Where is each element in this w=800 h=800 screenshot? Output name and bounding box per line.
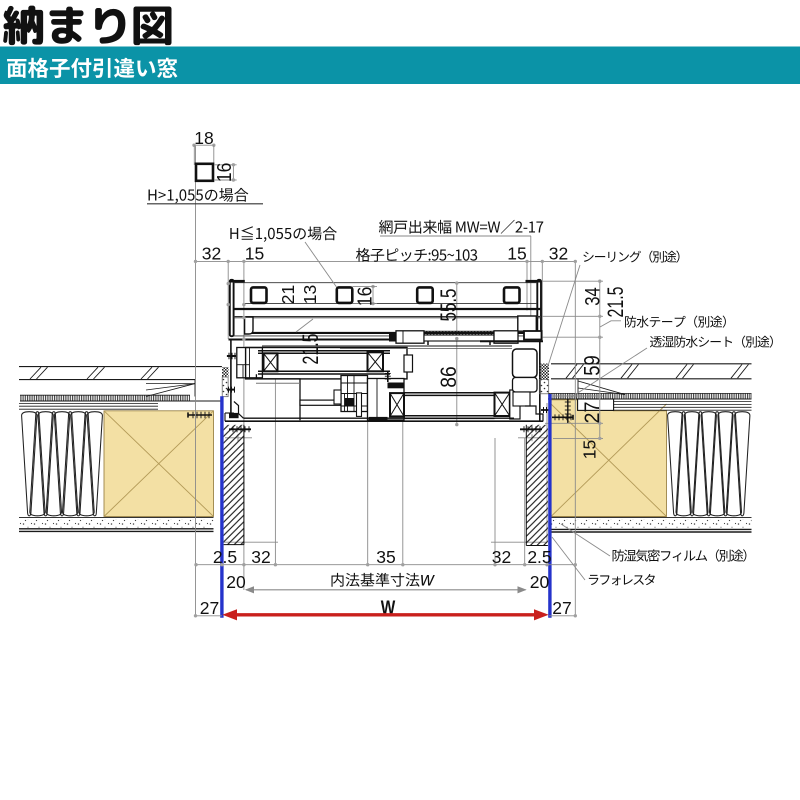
svg-text:32: 32 [492, 547, 511, 567]
svg-text:32: 32 [549, 244, 568, 264]
svg-text:86: 86 [436, 366, 461, 388]
svg-text:27: 27 [581, 402, 604, 424]
svg-text:13: 13 [300, 285, 320, 304]
svg-text:32: 32 [251, 547, 270, 567]
svg-text:21.5: 21.5 [603, 287, 628, 318]
svg-text:w: w [420, 570, 435, 591]
svg-text:15: 15 [245, 244, 264, 264]
svg-text:21: 21 [278, 285, 298, 304]
svg-text:27: 27 [552, 598, 571, 618]
svg-text:20: 20 [226, 572, 246, 592]
svg-text:2.5: 2.5 [527, 547, 551, 567]
svg-text:27: 27 [200, 598, 219, 618]
svg-text:2.5: 2.5 [213, 547, 237, 567]
svg-text:15: 15 [507, 244, 526, 264]
svg-text:55.5: 55.5 [436, 289, 461, 322]
svg-text:32: 32 [202, 244, 221, 264]
svg-text:21.5: 21.5 [298, 334, 323, 365]
svg-text:20: 20 [530, 572, 550, 592]
svg-text:59: 59 [580, 355, 605, 376]
svg-text:16: 16 [214, 163, 236, 183]
svg-text:34: 34 [582, 287, 605, 306]
svg-text:16: 16 [354, 287, 376, 307]
svg-text:15: 15 [580, 440, 600, 459]
svg-text:35: 35 [376, 547, 395, 567]
